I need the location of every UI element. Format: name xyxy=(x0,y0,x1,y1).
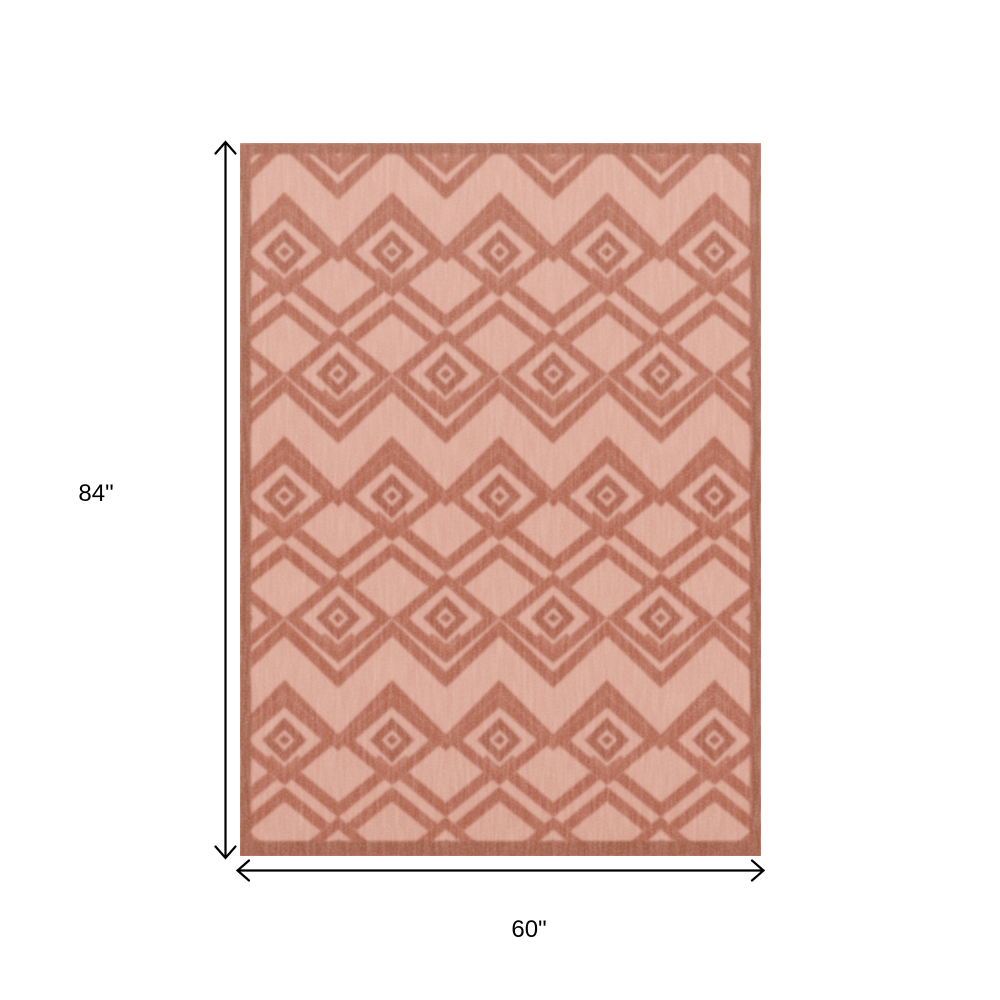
svg-text:84": 84" xyxy=(78,480,113,507)
svg-text:60": 60" xyxy=(511,916,546,943)
